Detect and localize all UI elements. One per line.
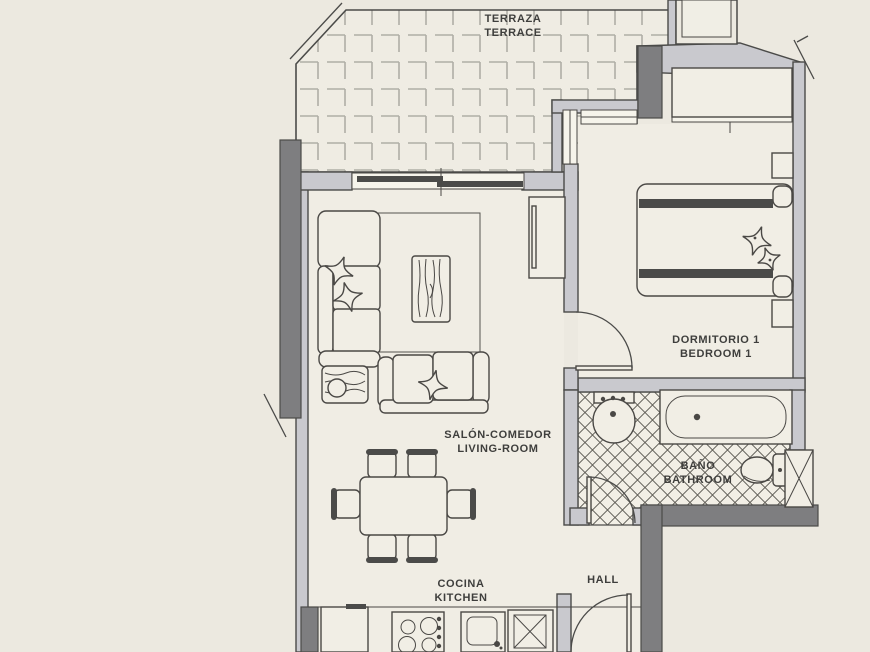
kitchen-pillar [301,607,318,652]
pillow-icon [773,186,792,207]
living-bedroom-wall-lower [564,368,578,390]
dining-chair-icon [366,449,398,478]
bedroom-pillar [638,46,662,118]
bedroom-label-en: BEDROOM 1 [680,348,752,360]
dining-chair-icon [406,449,438,478]
kitchen-label-en: KITCHEN [434,592,487,604]
entry-wall-horizontal [641,505,818,526]
bed-stripe [639,269,773,278]
dining-chair-icon [331,488,360,520]
bathroom-south-stub-left [570,508,589,525]
wardrobe-icon [672,68,792,117]
hall-label: HALL [587,574,619,586]
bed-stripe [639,199,773,208]
terrace-label-en: TERRACE [484,27,541,39]
living-room-label-es: SALÓN-COMEDOR [444,428,551,441]
terrace-label-es: TERRAZA [485,13,542,25]
bathroom-label-es: BAÑO [681,459,716,472]
fridge-icon [321,604,368,652]
terrace-east-wall [668,0,676,46]
entry-wall-vertical [641,505,662,652]
dining-chair-icon [406,534,438,563]
kitchen-label-es: COCINA [438,578,485,590]
two-seat-sofa-icon [378,352,489,413]
terrace-south-wall-left [296,172,352,190]
coffee-table-icon [412,256,450,322]
nightstand-icon [772,153,793,178]
living-room-label-en: LIVING-ROOM [457,443,538,455]
washbasin-icon [593,392,635,443]
living-bedroom-wall-upper [564,164,578,312]
toilet-icon [741,454,789,486]
dining-table-icon [360,477,447,535]
hall-door-stub [557,594,571,652]
side-table-lamp-icon [322,366,368,403]
balcony-inner [682,0,731,37]
corner-sofa-icon [318,211,380,367]
west-accent-wall [280,140,301,418]
hob-icon [392,612,444,652]
utility-shaft-icon [785,450,813,507]
bathroom-label-en: BATHROOM [664,474,733,486]
floor-plan-page: TERRAZA TERRACE SALÓN-COMEDOR LIVING-ROO… [0,0,870,652]
bathtub-icon [660,390,792,444]
washing-machine-icon [508,610,553,652]
bedroom-label-es: DORMITORIO 1 [672,334,760,346]
double-bed-icon [637,184,793,297]
nightstand-icon [772,300,793,327]
bedroom-east-wall [793,62,805,390]
dining-chair-icon [366,534,398,563]
floor-plan: TERRAZA TERRACE SALÓN-COMEDOR LIVING-ROO… [0,0,870,652]
tv-cabinet-icon [529,197,565,278]
dining-chair-icon [447,488,476,520]
kitchen-sink-icon [461,612,505,652]
bathroom-west-wall [564,390,578,525]
pillow-icon [773,276,792,297]
